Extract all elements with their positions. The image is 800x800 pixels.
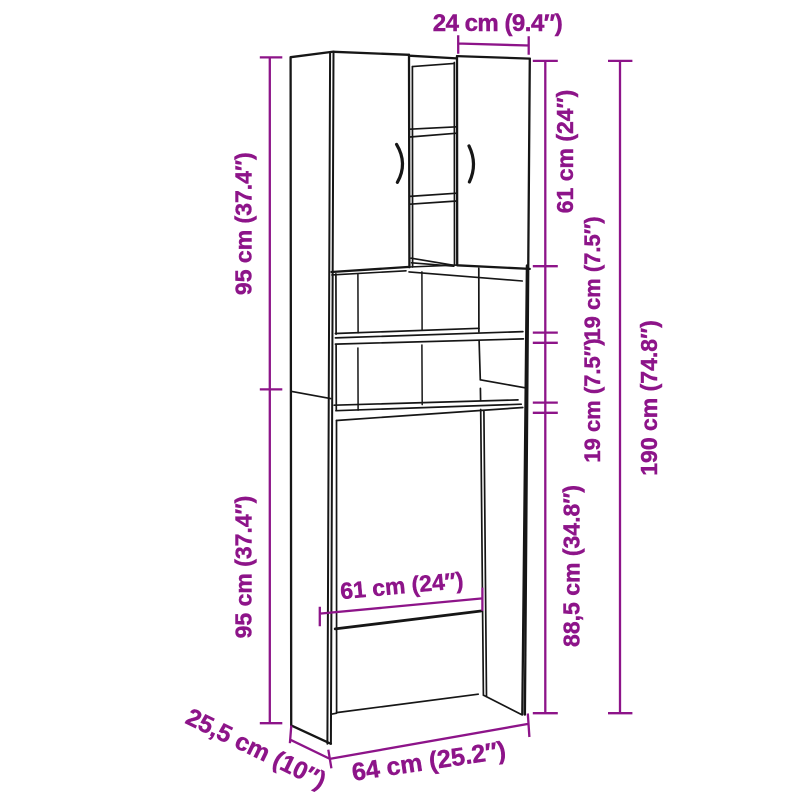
svg-text:19 cm (7.5″): 19 cm (7.5″) [580, 338, 605, 462]
svg-text:95 cm (37.4″): 95 cm (37.4″) [230, 496, 256, 639]
svg-text:19 cm (7.5″): 19 cm (7.5″) [580, 216, 605, 340]
svg-text:24 cm (9.4″): 24 cm (9.4″) [433, 10, 563, 37]
svg-text:95 cm (37.4″): 95 cm (37.4″) [230, 152, 256, 295]
svg-text:88,5 cm (34.8″): 88,5 cm (34.8″) [558, 485, 584, 647]
svg-text:190 cm (74.8″): 190 cm (74.8″) [636, 320, 662, 476]
svg-text:61 cm (24″): 61 cm (24″) [552, 90, 578, 214]
